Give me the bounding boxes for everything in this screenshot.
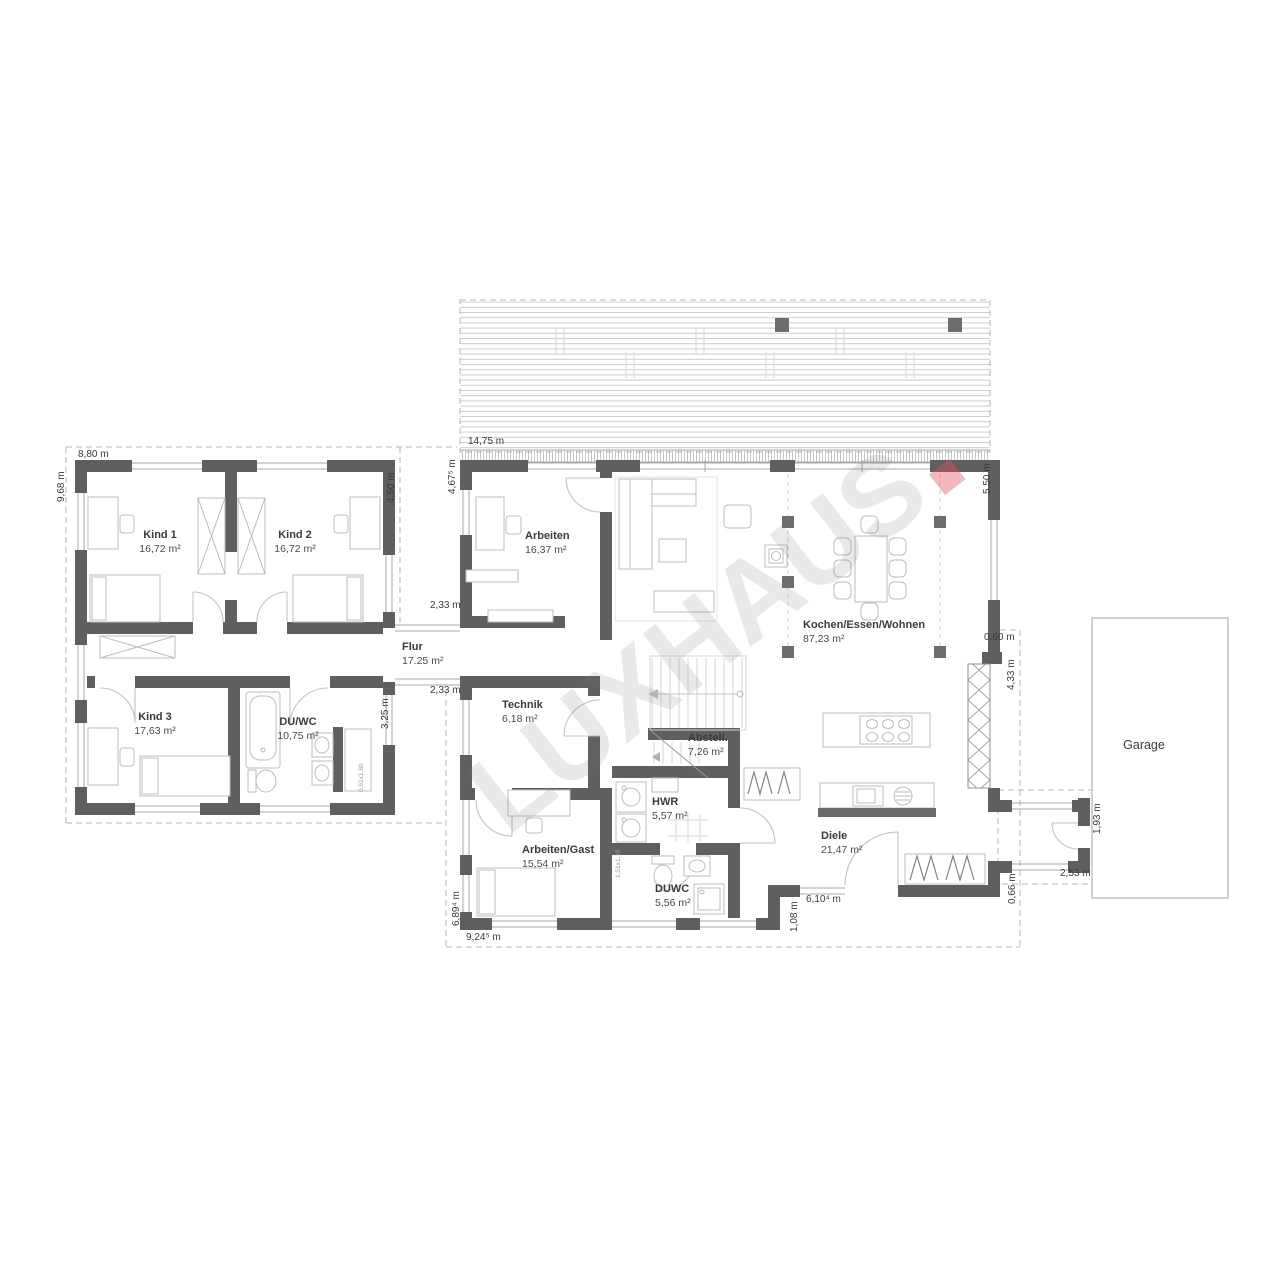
closet-hall: [744, 768, 800, 800]
dim-2-33-lower: 2,33 m: [430, 685, 461, 696]
furniture-kind1: [88, 497, 160, 622]
room-label-abstell: Abstell.7,26 m²: [688, 731, 760, 759]
dim-6-894: 6,89⁴ m: [451, 891, 462, 926]
dim-0-60: 0,60 m: [984, 632, 1015, 643]
terrace-post: [775, 318, 789, 332]
room-label-garage: Garage: [1096, 738, 1192, 752]
room-label-diele: Diele21,47 m²: [821, 829, 901, 857]
dim-4-50: 4,50 m: [386, 472, 397, 503]
furniture-dining: [834, 516, 906, 620]
room-label-duwc2: DUWC5,56 m²: [655, 882, 735, 910]
floor-plan: LUXHAUS Kind 116,72 m² Kind 216,72 m² Ki…: [0, 0, 1280, 1280]
terrace-post: [948, 318, 962, 332]
room-label-kind1: Kind 116,72 m²: [112, 528, 208, 556]
room-label-hwr: HWR5,57 m²: [652, 795, 722, 823]
dim-8-80: 8,80 m: [78, 449, 109, 460]
dim-0-66: 0,66 m: [1007, 873, 1018, 904]
garage-outline: [1092, 618, 1228, 898]
ceiling-element: [765, 545, 787, 567]
room-label-arbeiten: Arbeiten16,37 m²: [525, 529, 615, 557]
dim-14-75: 14,75 m: [468, 436, 504, 447]
dim-6-104: 6,10⁴ m: [806, 894, 841, 905]
dim-1-08: 1,08 m: [789, 901, 800, 932]
dim-4-33: 4,33 m: [1006, 659, 1017, 690]
room-label-arbeiten-gast: Arbeiten/Gast15,54 m²: [522, 843, 642, 871]
dim-9-245: 9,24⁵ m: [466, 932, 501, 943]
dim-2-33-upper: 2,33 m: [430, 600, 461, 611]
kitchen: [818, 713, 936, 817]
furniture-arbeiten: [466, 497, 553, 622]
floor-plan-drawing: [0, 0, 1280, 1280]
room-label-kind3: Kind 317,63 m²: [107, 710, 203, 738]
furniture-living: [615, 477, 751, 621]
dim-2-53: 2,53 m: [1060, 868, 1091, 879]
furniture-kind2: [293, 497, 380, 622]
room-label-technik: Technik6,18 m²: [502, 698, 582, 726]
dim-9-68: 9,68 m: [56, 471, 67, 502]
room-label-kochen-essen-wohnen: Kochen/Essen/Wohnen87,23 m²: [803, 618, 973, 646]
fixture-dim-note: 1,51x1,18: [615, 849, 622, 878]
room-label-kind2: Kind 216,72 m²: [247, 528, 343, 556]
room-label-flur: Flur17.25 m²: [402, 640, 472, 668]
dim-3-25: 3,25 m: [380, 698, 391, 729]
closet-entry: [905, 854, 985, 884]
dim-1-93: 1,93 m: [1092, 803, 1103, 834]
gravel-strip: [460, 450, 990, 462]
dim-5-50: 5,50 m: [982, 463, 993, 494]
dim-4-675: 4,67⁵ m: [447, 459, 458, 494]
room-label-duwc: DU/WC10,75 m²: [253, 715, 343, 743]
shower-dim-note: 0,51x1,80: [358, 763, 365, 792]
terrace-decking: [460, 300, 990, 462]
chimney-shaft: [968, 664, 990, 788]
